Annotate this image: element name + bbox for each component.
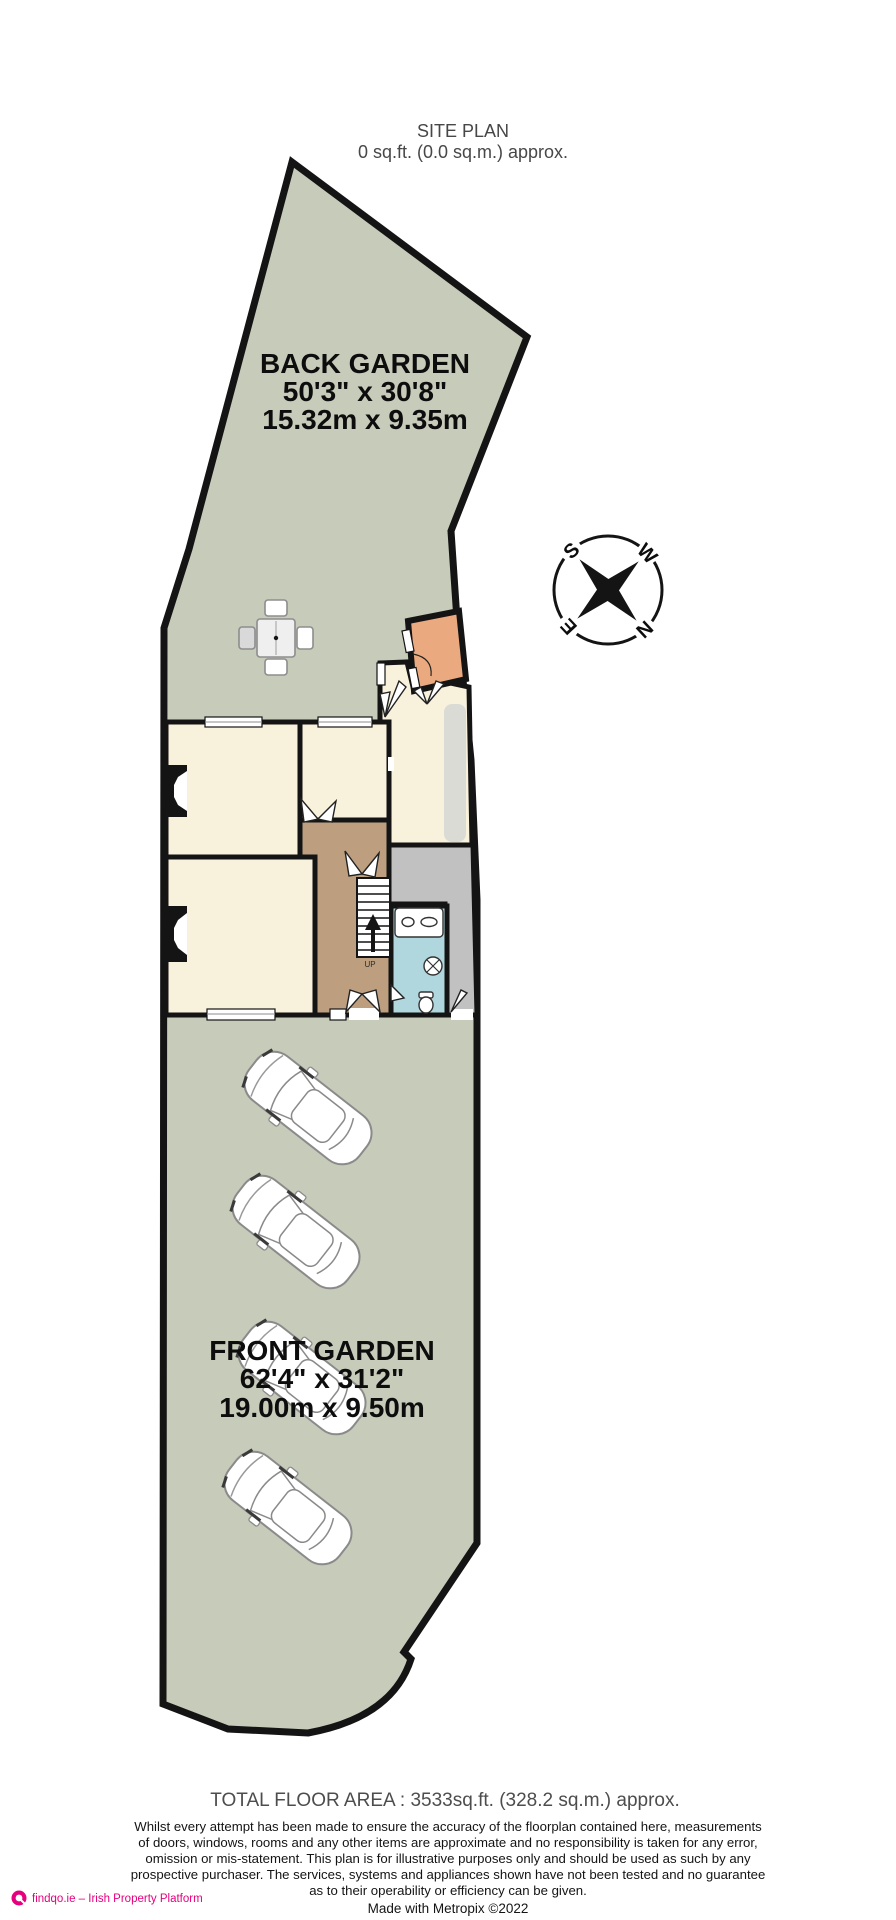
front-garden-label: FRONT GARDEN 62'4" x 31'2" 19.00m x 9.50… [209, 1335, 435, 1423]
footer: TOTAL FLOOR AREA : 3533sq.ft. (328.2 sq.… [131, 1790, 766, 1916]
disclaimer-line: as to their operability or efficiency ca… [309, 1883, 587, 1898]
window-icon [318, 717, 372, 727]
front-garden-size-imperial: 62'4" x 31'2" [240, 1363, 404, 1394]
findqo-brand-text: findqo.ie – Irish Property Platform [32, 1893, 203, 1905]
front-garden-name: FRONT GARDEN [209, 1335, 435, 1366]
disclaimer-line: of doors, windows, rooms and any other i… [138, 1835, 757, 1850]
total-floor-area: TOTAL FLOOR AREA : 3533sq.ft. (328.2 sq.… [210, 1790, 680, 1811]
disclaimer-line: prospective purchaser. The services, sys… [131, 1867, 766, 1882]
window-icon [205, 717, 262, 727]
metropix-credit: Made with Metropix ©2022 [368, 1901, 529, 1916]
back-garden-label: BACK GARDEN 50'3" x 30'8" 15.32m x 9.35m [260, 348, 470, 435]
toilet-icon [419, 997, 433, 1013]
compass-rose: N E S W [554, 536, 662, 644]
door-opening [388, 757, 394, 771]
back-garden-size-metric: 15.32m x 9.35m [262, 404, 468, 435]
back-garden-size-imperial: 50'3" x 30'8" [283, 376, 447, 407]
stairs: UP [357, 878, 390, 969]
room-middle [300, 722, 391, 822]
site-plan-page: SITE PLAN 0 sq.ft. (0.0 sq.m.) approx. [0, 0, 896, 1920]
chair-icon [265, 600, 287, 616]
chair-icon [265, 659, 287, 675]
room-reception-rear [166, 857, 315, 1015]
front-door-opening [349, 1008, 379, 1020]
page-title: SITE PLAN [417, 121, 509, 141]
door-opening [451, 1009, 473, 1020]
window-icon [207, 1009, 275, 1020]
site-plan-drawing: SITE PLAN 0 sq.ft. (0.0 sq.m.) approx. [0, 0, 896, 1920]
window-icon [377, 663, 385, 685]
stairs-up-label: UP [364, 960, 375, 969]
page-subtitle: 0 sq.ft. (0.0 sq.m.) approx. [358, 142, 568, 162]
branding: findqo.ie – Irish Property Platform [12, 1891, 203, 1906]
bath-icon [421, 918, 437, 927]
chair-icon [239, 627, 255, 649]
sink-icon [402, 918, 414, 927]
compass-star-icon [577, 559, 638, 620]
disclaimer-line: omission or mis-statement. This plan is … [145, 1851, 751, 1866]
built-in-unit [444, 704, 466, 842]
window-icon [330, 1009, 346, 1020]
chair-icon [297, 627, 313, 649]
front-garden-size-metric: 19.00m x 9.50m [219, 1392, 425, 1423]
disclaimer-line: Whilst every attempt has been made to en… [134, 1819, 762, 1834]
back-garden-name: BACK GARDEN [260, 348, 470, 379]
